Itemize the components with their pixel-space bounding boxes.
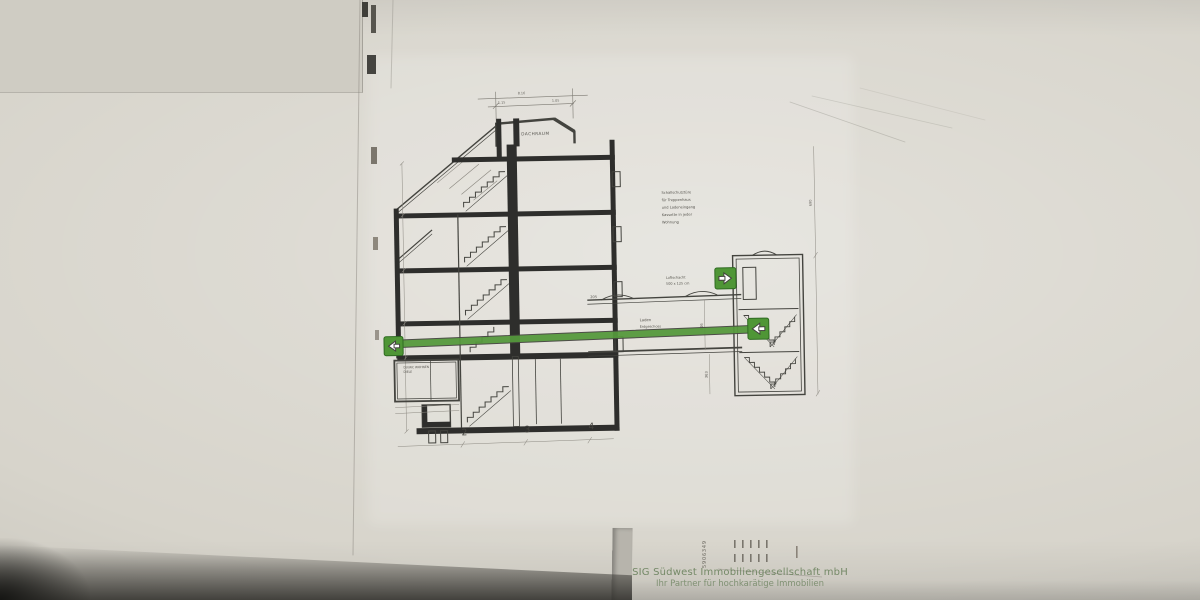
left-dimension-chain [400, 161, 409, 433]
footing [395, 404, 460, 443]
stair-tower [731, 146, 820, 397]
dim-top-3: 1.05 [552, 99, 560, 103]
attic-chamfer-wall [554, 118, 574, 131]
shaft-note-1: Luftschacht [666, 275, 686, 279]
note-line-4: Kassette in jeder [662, 213, 693, 218]
main-building [390, 117, 625, 449]
company-name: SIG Südwest Immobiliengesellschaft mbH [590, 567, 890, 579]
grid-label-4: 4 [588, 422, 594, 432]
note-line-2: für Treppenhaus [662, 198, 691, 203]
note-line-3: und Ladeneingang [662, 205, 696, 210]
top-dimension-chain [478, 88, 589, 122]
corridor-label-2: Erdgeschoss [640, 324, 662, 328]
dim-top-1: 1.15 [498, 101, 506, 105]
dim-363: 363 [705, 371, 709, 378]
floor-slabs [394, 155, 620, 435]
grid-label-3: 3 [524, 425, 530, 435]
drawing-labels: DACHRAUM Schallschutztüre für Treppenhau… [399, 126, 816, 439]
drawing-layer: 1.15 8.16 1.05 [0, 0, 1200, 600]
photo-of-section-drawing: 1.15 8.16 1.05 [0, 0, 1200, 600]
dim-690: 690 [809, 199, 813, 207]
room-label-2: DIELE [403, 370, 412, 374]
staircase [463, 172, 511, 427]
note-line-1: Schallschutztüre [661, 190, 692, 195]
company-slogan: Ihr Partner für hochkarätige Immobilien [590, 579, 890, 589]
grid-label-2: 2 [462, 428, 468, 438]
corridor [587, 291, 743, 396]
attic-label: DACHRAUM [521, 131, 549, 136]
company-watermark: SIG Südwest Immobiliengesellschaft mbH I… [590, 567, 890, 589]
stamp-number: 5906349 [702, 540, 708, 568]
route-arrow-left-icon [748, 318, 769, 339]
route-bar [400, 325, 757, 347]
corner-shadow [0, 538, 90, 600]
annotation-green-route [383, 267, 769, 356]
right-dimension-line [812, 146, 820, 396]
exit-arrow-right-icon [715, 268, 736, 289]
exit-arrow-left-icon [384, 336, 403, 355]
dim-205: 205 [590, 295, 597, 299]
note-line-5: Wohnung [662, 220, 679, 224]
section-drawing: 1.15 8.16 1.05 [380, 84, 821, 449]
shaft-note-2: 500 x 125 cm [666, 281, 690, 285]
room-label-1: DU/WC WOHNEN [403, 365, 429, 369]
corridor-label-1: Laden [640, 317, 652, 322]
dim-top-2: 8.16 [518, 91, 526, 95]
